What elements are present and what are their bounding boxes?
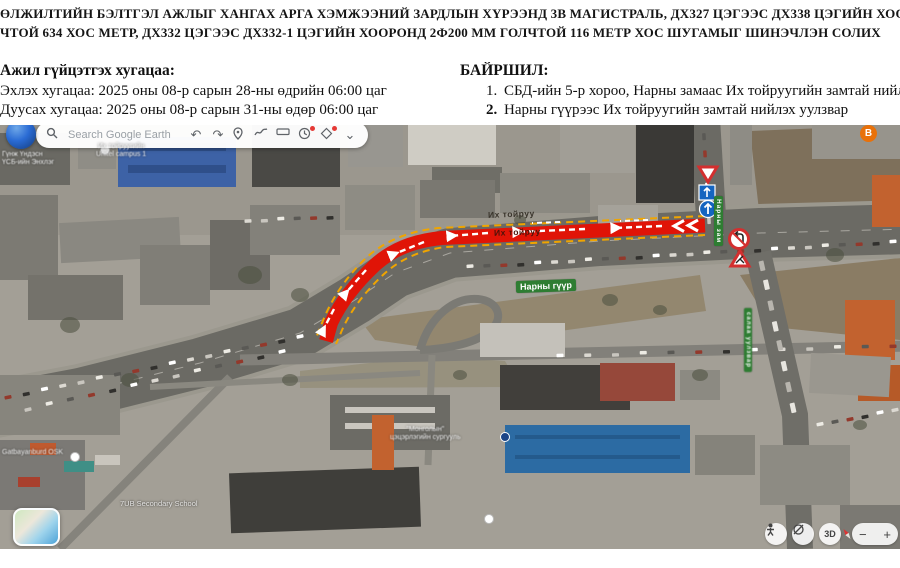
road-label-narny-zam: Нарны зам bbox=[714, 196, 723, 246]
location-title: БАЙРШИЛ: bbox=[460, 62, 900, 80]
zoom-controls: − + bbox=[852, 523, 898, 545]
poi-label-school: 7UB Secondary School bbox=[120, 500, 198, 508]
zoom-out-button[interactable]: − bbox=[859, 527, 867, 542]
doc-title-line1: ӨЛЖИЛТИЙН БЭЛТГЭЛ АЖЛЫГ ХАНГАХ АРГА ХЭМЖ… bbox=[0, 6, 900, 22]
work-schedule-block: Ажил гүйцэтгэх хугацаа: Эхлэх хугацаа: 2… bbox=[0, 62, 450, 119]
earth-toolbar: Search Google Earth ↶ ↷ ⌄ bbox=[36, 125, 368, 148]
undo-icon[interactable]: ↶ bbox=[188, 127, 204, 143]
location-item: 2.Нарны гүүрээс Их тойруугийн замтай ний… bbox=[460, 102, 900, 119]
street-label-ikh-toiruu: Их тойруу bbox=[488, 208, 535, 220]
history-icon[interactable] bbox=[298, 127, 314, 143]
poi-label: Гүнж ҮндэснҮСБ-ийн Энхлэг bbox=[2, 151, 54, 167]
schedule-title: Ажил гүйцэтгэх хугацаа: bbox=[0, 62, 450, 80]
location-item: 1.СБД-ийн 5-р хороо, Нарны замаас Их той… bbox=[460, 83, 900, 100]
location-block: БАЙРШИЛ: 1.СБД-ийн 5-р хороо, Нарны зама… bbox=[460, 62, 900, 119]
orbit-icon[interactable] bbox=[792, 523, 814, 545]
poi-label-campus: Их тойруугийнUnitel campus 1 bbox=[96, 143, 146, 159]
google-earth-map[interactable]: Search Google Earth ↶ ↷ ⌄ B bbox=[0, 125, 900, 549]
redo-icon[interactable]: ↷ bbox=[210, 127, 226, 143]
road-label-uulzvar: салаа уулзвар bbox=[744, 308, 752, 372]
road-label-narny-guur: Нарны гүүр bbox=[516, 279, 576, 293]
measure-icon[interactable] bbox=[276, 127, 292, 143]
location-item-text: СБД-ийн 5-р хороо, Нарны замаас Их тойру… bbox=[504, 83, 900, 99]
location-item-text: Нарны гүүрээс Их тойруугийн замтай нийлэ… bbox=[504, 102, 848, 118]
browser-badge[interactable]: B bbox=[860, 125, 877, 142]
poi-label-kindergarten: "Монголын"цэцэрлэгийн сургууль bbox=[390, 426, 461, 442]
satellite-imagery bbox=[0, 125, 900, 549]
chevron-down-icon[interactable]: ⌄ bbox=[342, 127, 358, 143]
placemark-icon[interactable] bbox=[232, 127, 248, 143]
doc-title-line2: ЧТОЙ 634 ХОС МЕТР, ДХ332 ЦЭГЭЭС ДХ332-1 … bbox=[0, 25, 900, 41]
view-3d-button[interactable]: 3D bbox=[819, 523, 841, 545]
layers-thumbnail[interactable] bbox=[13, 508, 60, 546]
poi-marker-icon[interactable] bbox=[70, 452, 80, 462]
search-input[interactable]: Search Google Earth bbox=[68, 129, 171, 141]
snapshot-icon[interactable] bbox=[320, 127, 336, 143]
search-icon[interactable] bbox=[46, 127, 62, 143]
page: ӨЛЖИЛТИЙН БЭЛТГЭЛ АЖЛЫГ ХАНГАХ АРГА ХЭМЖ… bbox=[0, 0, 900, 568]
poi-marker-icon[interactable] bbox=[484, 514, 494, 524]
street-label-ikh-toiruu: Их тойруу bbox=[494, 226, 541, 238]
schedule-end: Дуусах хугацаа: 2025 оны 08-р сарын 31-н… bbox=[0, 102, 450, 119]
location-item-number: 1. bbox=[486, 83, 504, 100]
poi-marker-icon[interactable] bbox=[500, 432, 510, 442]
path-icon[interactable] bbox=[254, 127, 270, 143]
schedule-start: Эхлэх хугацаа: 2025 оны 08-р сарын 28-ны… bbox=[0, 83, 450, 100]
location-item-number: 2. bbox=[486, 102, 504, 119]
pegman-icon[interactable] bbox=[765, 523, 787, 545]
zoom-in-button[interactable]: + bbox=[883, 527, 891, 542]
poi-label-osk: Gatbayanburd OSK bbox=[2, 449, 63, 457]
